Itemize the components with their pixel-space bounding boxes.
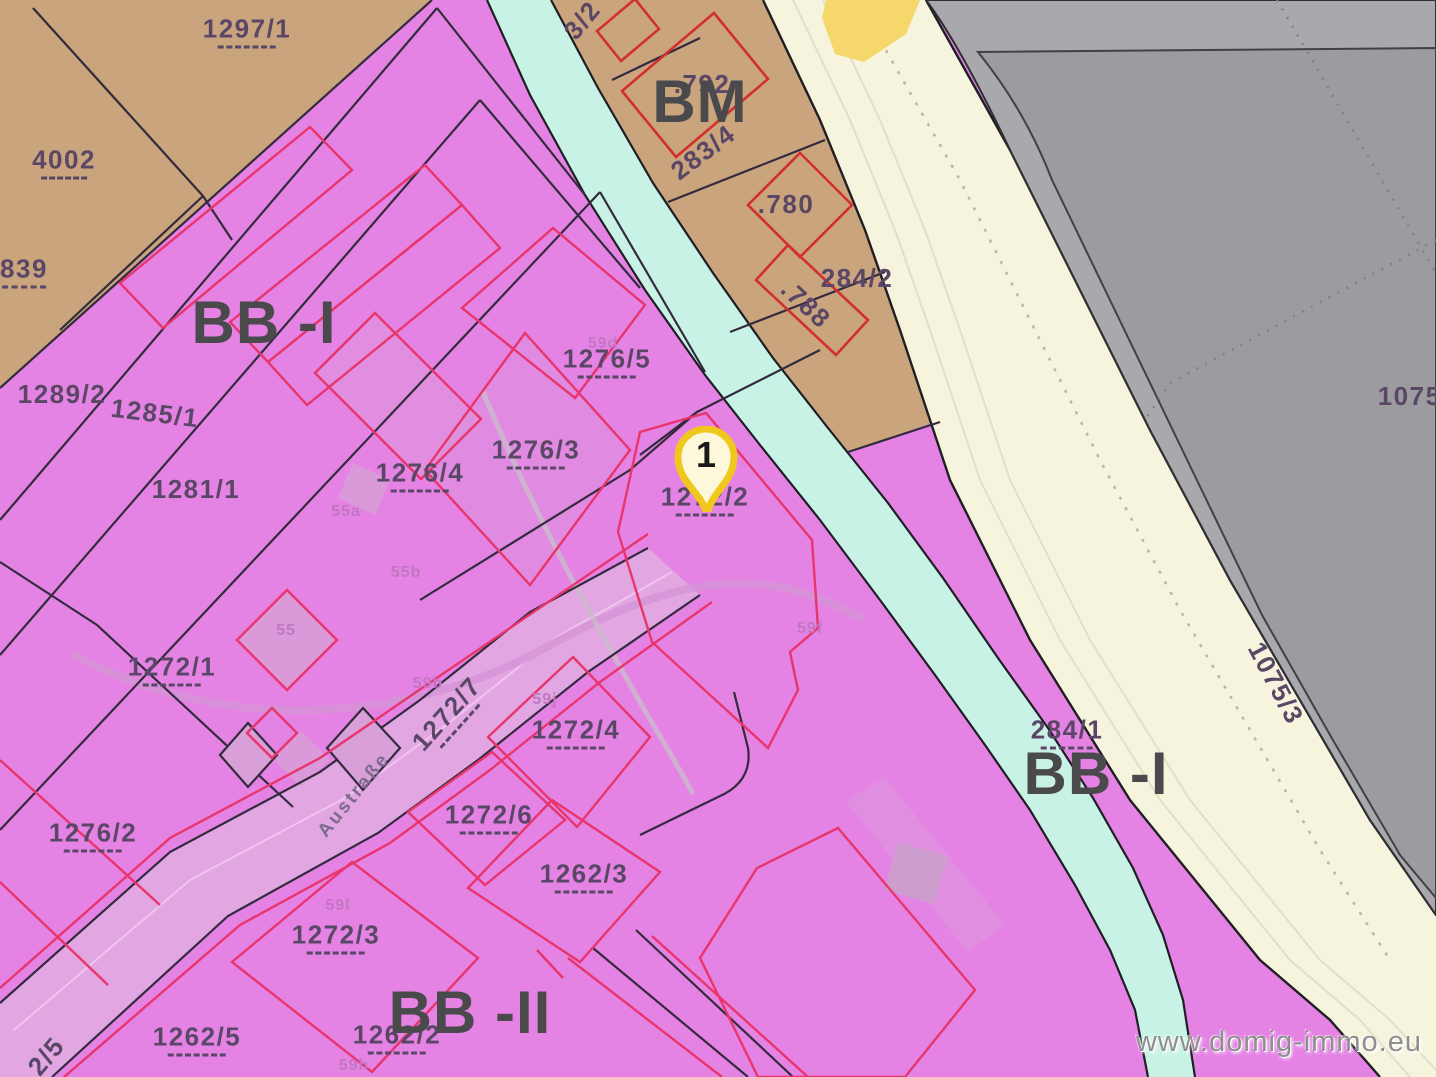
minor-59f: 59f — [797, 621, 823, 637]
minor-59l: 59l — [325, 898, 350, 914]
zone-bb-2: BB -II — [389, 983, 552, 1043]
parcel-283-4: 283/4 — [666, 120, 740, 184]
parcel-1276-2: 1276/2 — [49, 820, 138, 853]
parcel-839: 839 — [0, 256, 48, 289]
location-marker-pin[interactable]: 1 — [673, 426, 739, 512]
zone-bb-1-right: BB -I — [1024, 744, 1169, 804]
parcel-1075-3: 1075/3 — [1244, 638, 1309, 728]
minor-59b: 59b — [413, 676, 444, 692]
parcel-1272-3: 1272/3 — [292, 922, 381, 955]
minor-59h: 59h — [339, 1058, 370, 1074]
minor-59d: 59d — [588, 336, 619, 352]
parcel-1272-7: 1272/7 — [407, 672, 491, 760]
parcel-1297-1: 1297/1 — [203, 16, 292, 49]
parcel-1262-5: 1262/5 — [153, 1024, 242, 1057]
parcel-284-1: 284/1 — [1031, 717, 1104, 750]
parcel-283-2: 3/2 — [559, 0, 605, 44]
parcel-1276-3: 1276/3 — [492, 437, 581, 470]
parcel-788: .788 — [776, 275, 835, 333]
parcel-780: .780 — [758, 191, 815, 217]
parcel-1289-2: 1289/2 — [18, 381, 107, 407]
labels-layer: 1297/14002839BB -I1289/21285/11281/155a5… — [0, 0, 1436, 1077]
parcel-1262-3: 1262/3 — [540, 861, 629, 894]
parcel-792: .792 — [674, 71, 731, 97]
street-austrasse: Austraße — [314, 749, 393, 841]
zone-bm: BM — [652, 72, 747, 132]
parcel-1272-6: 1272/6 — [445, 802, 534, 835]
parcel-284-2: 284/2 — [821, 265, 894, 291]
parcel-1272-4: 1272/4 — [532, 717, 621, 750]
zoning-map[interactable]: 1297/14002839BB -I1289/21285/11281/155a5… — [0, 0, 1436, 1077]
parcel-1285-1: 1285/1 — [109, 395, 200, 432]
parcel-1276-4: 1276/4 — [376, 460, 465, 493]
watermark: www.domig-immo.eu — [1136, 1026, 1422, 1059]
parcel-4002: 4002 — [32, 147, 96, 180]
zone-bb-1-left: BB -I — [192, 293, 337, 353]
parcel-2-5: 2/5 — [23, 1032, 69, 1077]
minor-55b: 55b — [391, 565, 422, 581]
marker-number: 1 — [673, 434, 739, 476]
parcel-1262-2: 1262/2 — [353, 1022, 442, 1055]
parcel-1272-1: 1272/1 — [128, 654, 217, 687]
minor-55: 55 — [276, 623, 296, 639]
parcel-1276-5: 1276/5 — [563, 346, 652, 379]
parcel-1281-1: 1281/1 — [152, 476, 241, 502]
minor-55a: 55a — [331, 504, 361, 520]
parcel-1075-edge: 1075/ — [1378, 383, 1436, 409]
minor-59j: 59j — [532, 692, 557, 708]
